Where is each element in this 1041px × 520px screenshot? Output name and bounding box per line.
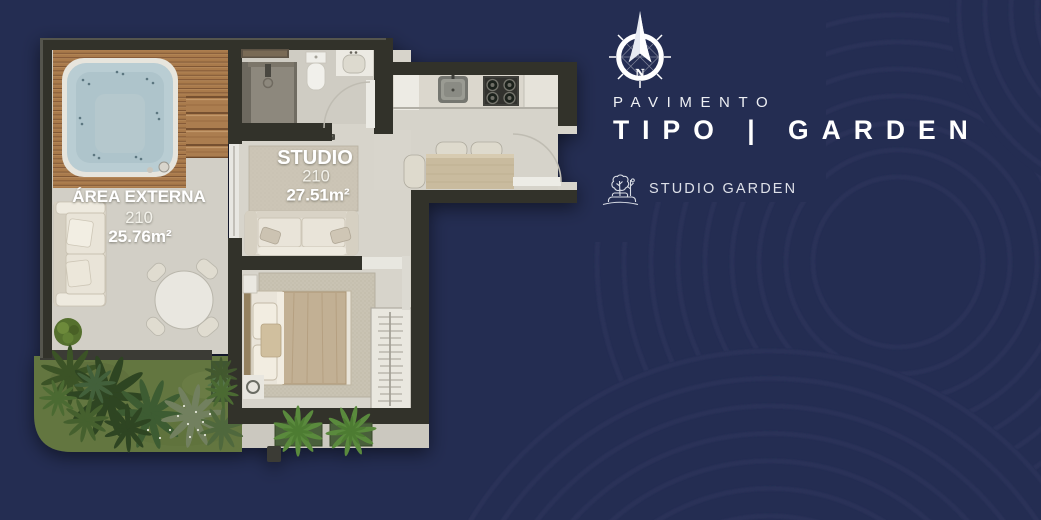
svg-text:N: N xyxy=(635,67,644,81)
svg-text:STUDIO: STUDIO xyxy=(277,147,353,169)
svg-text:27.51m²: 27.51m² xyxy=(286,186,350,205)
svg-text:210: 210 xyxy=(302,168,330,186)
svg-text:210: 210 xyxy=(125,209,153,227)
svg-text:25.76m²: 25.76m² xyxy=(108,227,172,246)
svg-text:ÁREA EXTERNA: ÁREA EXTERNA xyxy=(72,187,206,206)
